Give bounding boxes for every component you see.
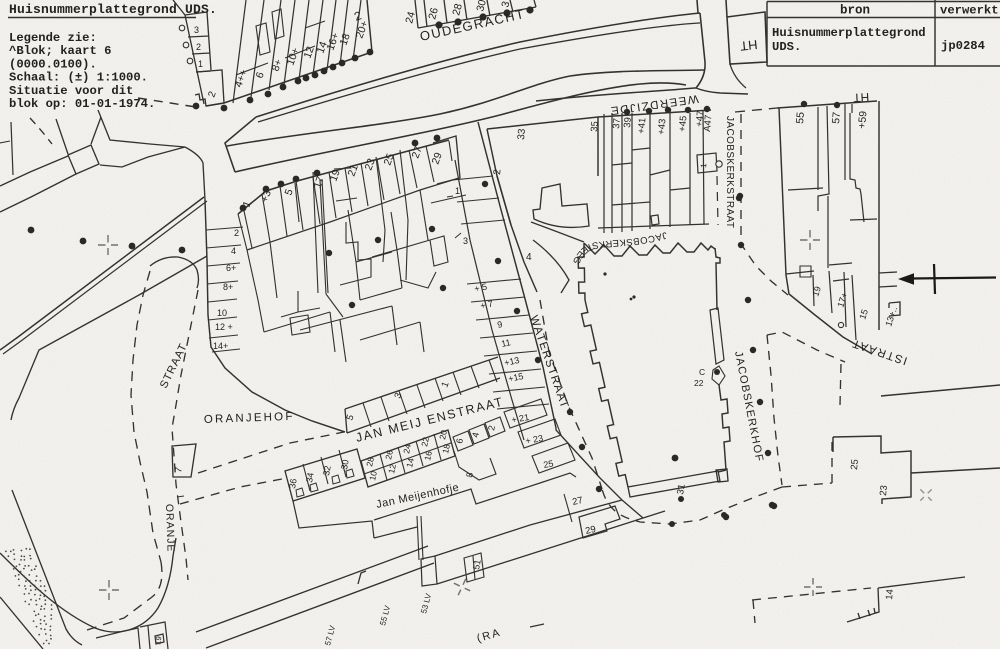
svg-text:3: 3	[194, 25, 199, 35]
svg-text:14+: 14+	[213, 341, 228, 351]
svg-text:(0000.0100).: (0000.0100).	[9, 57, 97, 71]
svg-text:57: 57	[830, 111, 843, 124]
svg-text:HT: HT	[739, 37, 758, 54]
svg-text:Schaal: (±) 1:1000.: Schaal: (±) 1:1000.	[9, 71, 148, 85]
svg-text:verwerkt: verwerkt	[940, 4, 999, 18]
svg-text:C: C	[699, 367, 705, 377]
svg-text:Huisnummerplattegrond: Huisnummerplattegrond	[772, 26, 926, 40]
svg-text:25: 25	[543, 458, 555, 470]
svg-text:30: 30	[339, 459, 351, 471]
svg-text:4: 4	[526, 252, 532, 263]
svg-text:33: 33	[516, 128, 528, 140]
svg-text:27: 27	[571, 495, 584, 508]
svg-text:blok op: 01-01-1974.: blok op: 01-01-1974.	[9, 97, 155, 111]
svg-text:39: 39	[622, 117, 634, 128]
svg-text:6+: 6+	[226, 263, 236, 273]
svg-text:31: 31	[675, 483, 688, 495]
svg-text:jp0284: jp0284	[941, 39, 985, 53]
svg-text:3: 3	[463, 236, 468, 246]
svg-text:2: 2	[234, 228, 239, 238]
svg-text:+59: +59	[856, 110, 870, 129]
svg-text:A47: A47	[702, 114, 714, 132]
svg-text:JACOBSKERKSTRAAT: JACOBSKERKSTRAAT	[724, 116, 735, 228]
svg-text:+45: +45	[677, 115, 689, 132]
svg-text:34: 34	[304, 472, 316, 484]
svg-text:1: 1	[455, 186, 460, 196]
svg-text:2: 2	[196, 42, 201, 52]
svg-text:14: 14	[884, 589, 896, 600]
svg-text:55: 55	[794, 111, 807, 124]
svg-text:29: 29	[584, 524, 597, 537]
svg-text:36: 36	[287, 478, 299, 490]
svg-text:1: 1	[198, 59, 203, 69]
svg-text:Legende zie:: Legende zie:	[9, 31, 97, 45]
svg-text:4: 4	[231, 246, 236, 256]
svg-text:19: 19	[153, 636, 163, 646]
svg-text:10: 10	[217, 308, 227, 318]
svg-text:UDS.: UDS.	[772, 40, 801, 54]
svg-text:8+: 8+	[223, 282, 233, 292]
svg-text:^Blok; kaart 6: ^Blok; kaart 6	[9, 44, 111, 58]
svg-text:32: 32	[321, 465, 333, 477]
svg-text:+41: +41	[636, 117, 648, 134]
svg-text:22: 22	[694, 378, 704, 388]
svg-text:+43: +43	[656, 118, 668, 135]
svg-text:bron: bron	[840, 4, 870, 18]
svg-text:Situatie voor dit: Situatie voor dit	[9, 84, 133, 98]
svg-text:23: 23	[878, 485, 890, 496]
svg-text:25: 25	[849, 459, 861, 470]
svg-text:35: 35	[589, 121, 601, 132]
svg-text:51: 51	[471, 559, 483, 571]
svg-text:12 +: 12 +	[215, 322, 233, 332]
